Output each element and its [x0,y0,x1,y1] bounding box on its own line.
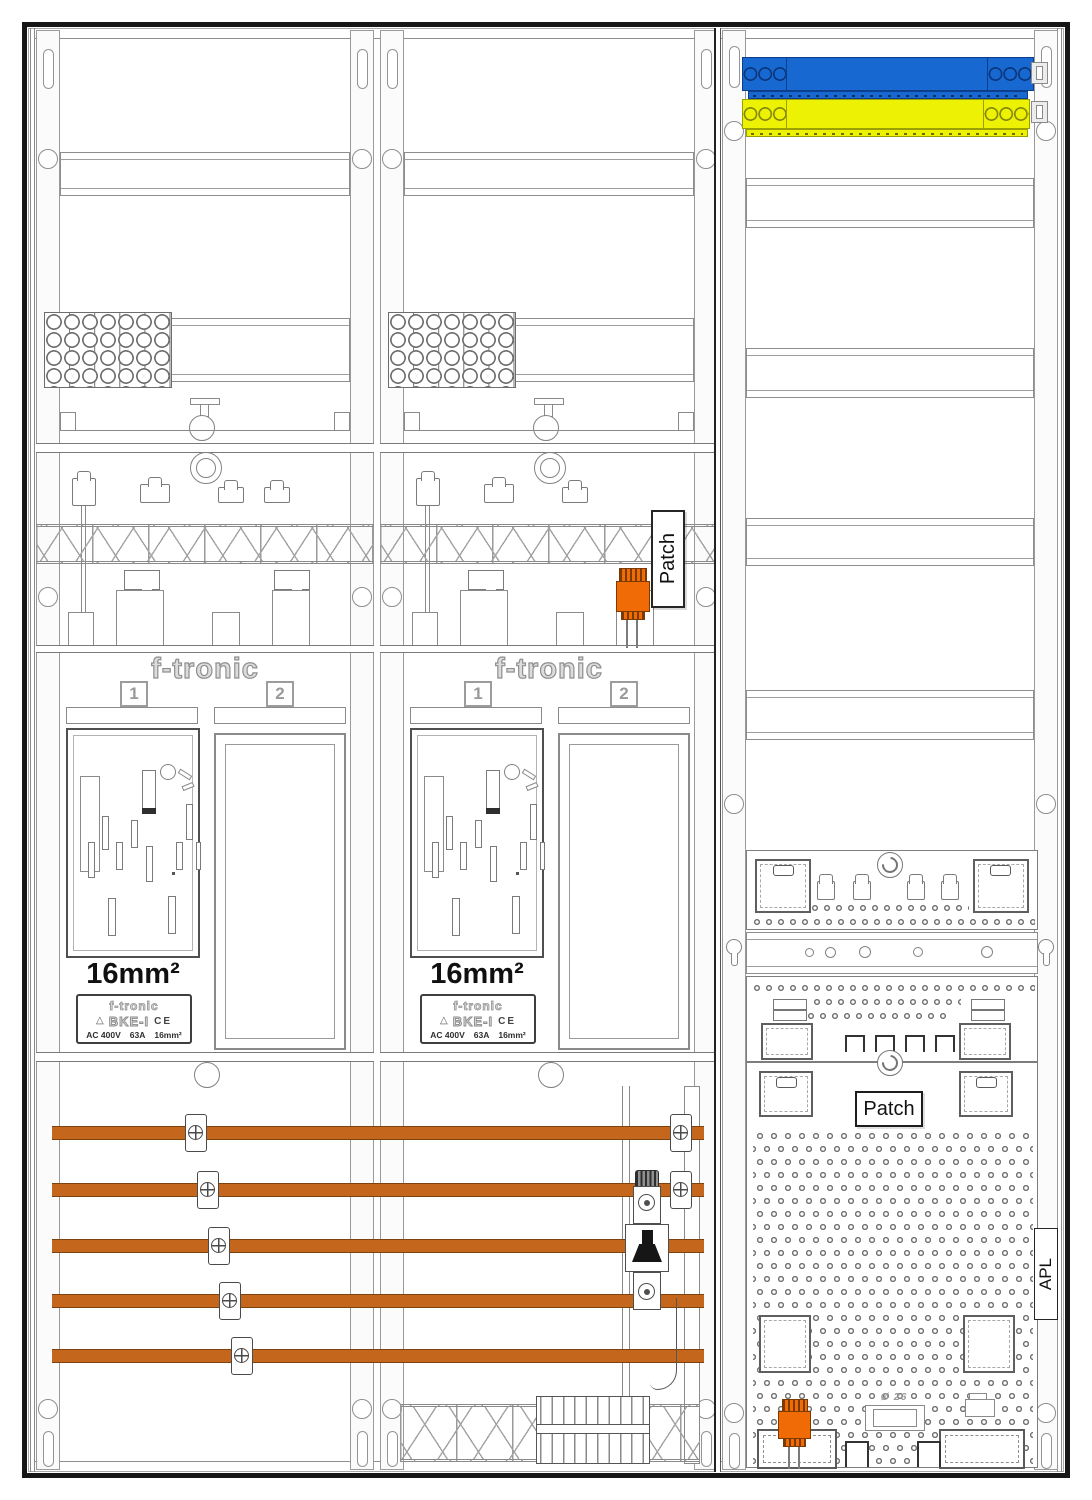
meter-cabinet-drawing: f-tronic 1 2 16mm² f- [0,0,1092,1500]
cabinet-frame [22,22,1070,1478]
